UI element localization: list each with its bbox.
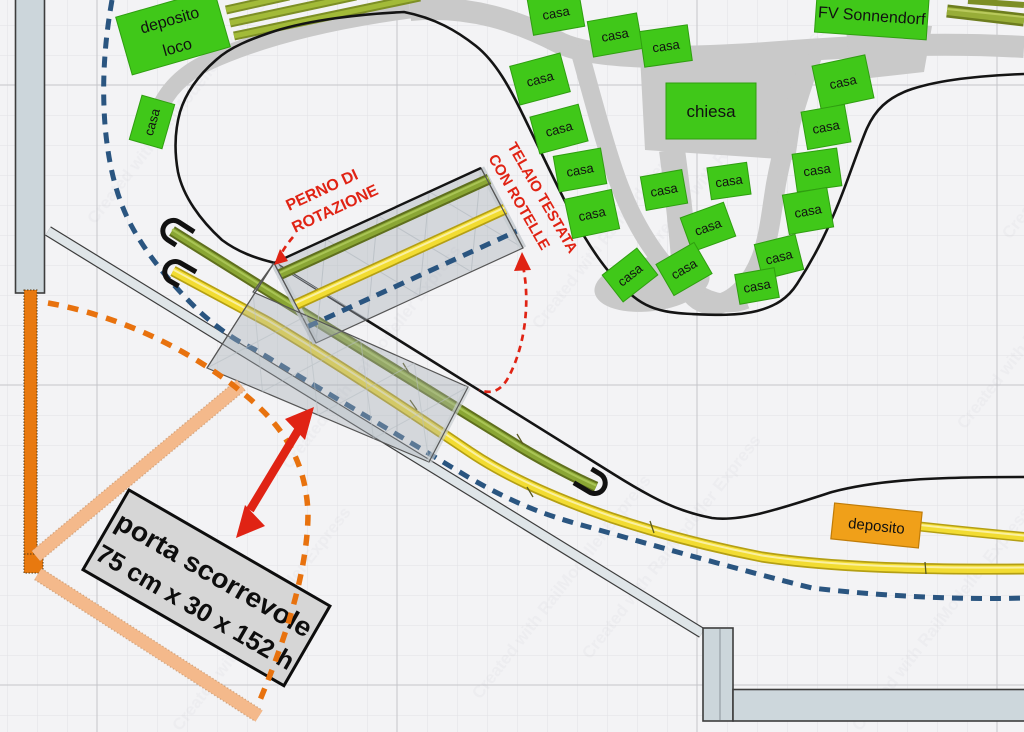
svg-text:chiesa: chiesa <box>686 102 736 121</box>
